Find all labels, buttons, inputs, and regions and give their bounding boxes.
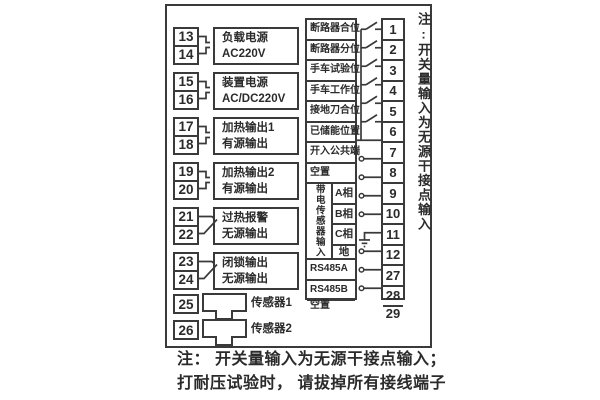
left-group-label: 加热输出1有源输出: [213, 117, 299, 155]
terminal-number: 18: [175, 137, 197, 153]
terminal-number: 2: [383, 41, 403, 62]
terminal-number: 15: [175, 74, 197, 92]
terminal-number: 27: [383, 266, 403, 287]
terminal-number: 20: [175, 182, 197, 198]
terminal-number: 4: [383, 82, 403, 103]
terminal-number: 21: [175, 209, 197, 227]
group-label-line: 闭锁输出: [222, 257, 297, 270]
group-label-line: 负载电源: [222, 32, 297, 45]
right-number-column: 123456789101112272829: [381, 18, 405, 300]
terminal-pair-17-18: 1718: [173, 117, 199, 155]
bottom-note-line-1: 注： 开关量输入为无源干接点输入；: [177, 352, 446, 368]
input-label-row: 断路器分位: [307, 41, 355, 62]
group-label-line: 加热输出1: [222, 122, 297, 135]
terminal-pair-13-14: 1314: [173, 27, 199, 65]
comm-label-row: RS485A: [307, 260, 355, 281]
terminal-number: 8: [383, 164, 403, 185]
left-group-label: 闭锁输出无源输出: [213, 252, 299, 290]
group-label-line: 过热报警: [222, 212, 297, 225]
input-label-row: 手车工作位: [307, 82, 355, 103]
terminal-number: 7: [383, 143, 403, 164]
terminal-number: 24: [175, 272, 197, 288]
input-label-row: 断路器合位: [307, 20, 355, 41]
terminal-number: 12: [383, 246, 403, 267]
left-group-label: 加热输出2有源输出: [213, 162, 299, 200]
terminal-number: 17: [175, 119, 197, 137]
terminal-box-26: 26: [173, 320, 199, 340]
group-label-line: AC/DC220V: [222, 93, 297, 106]
terminal-pair-23-24: 2324: [173, 252, 199, 290]
group-label-line: 装置电源: [222, 77, 297, 90]
bottom-note-line-2: 打耐压试验时， 请拔掉所有接线端子: [177, 376, 446, 392]
phase-label-row: C相: [333, 225, 355, 246]
terminal-number: 14: [175, 47, 197, 63]
side-note-vertical: 注:开关量输入为无源干接点输入: [406, 12, 430, 338]
terminal-pair-21-22: 2122: [173, 207, 199, 245]
terminal-number: 26: [175, 322, 197, 338]
input-label-row: 开入公共端: [307, 143, 355, 164]
terminal-wiring-diagram: 注:开关量输入为无源干接点输入 注： 开关量输入为无源干接点输入； 打耐压试验时…: [0, 0, 600, 400]
input-label-row: 空置: [307, 164, 355, 185]
sensor-label: 传感器1: [251, 298, 292, 310]
left-group-label: 负载电源AC220V: [213, 27, 299, 65]
phase-label-row: B相: [333, 205, 355, 226]
group-label-line: 有源输出: [222, 138, 297, 151]
group-label-line: 无源输出: [222, 228, 297, 241]
terminal-number: 10: [383, 205, 403, 226]
left-group-label: 装置电源AC/DC220V: [213, 72, 299, 110]
terminal-number: 29: [383, 307, 403, 320]
sensor-label: 传感器2: [251, 324, 292, 336]
phase-label-row: 地: [333, 246, 355, 259]
terminal-number: 28: [383, 287, 403, 308]
comm-label-row: RS485B: [307, 281, 355, 302]
group-label-line: AC220V: [222, 48, 297, 61]
terminal-number: 5: [383, 102, 403, 123]
live-sensor-group-label: 带电传感器输入: [307, 184, 333, 258]
terminal-number: 3: [383, 61, 403, 82]
live-sensor-phases: A相B相C相地: [333, 184, 355, 258]
terminal-number: 22: [175, 227, 197, 243]
terminal-number: 19: [175, 164, 197, 182]
live-sensor-input-group: 带电传感器输入A相B相C相地: [307, 184, 355, 260]
terminal-number: 23: [175, 254, 197, 272]
group-label-line: 加热输出2: [222, 167, 297, 180]
terminal-number: 11: [383, 225, 403, 246]
terminal-number: 6: [383, 123, 403, 144]
right-label-column: 断路器合位断路器分位手车试验位手车工作位接地刀合位已储能位置开入公共端空置带电传…: [305, 18, 357, 300]
terminal-number: 1: [383, 20, 403, 41]
left-group-label: 过热报警无源输出: [213, 207, 299, 245]
terminal-pair-15-16: 1516: [173, 72, 199, 110]
terminal-pair-19-20: 1920: [173, 162, 199, 200]
group-label-line: 有源输出: [222, 183, 297, 196]
terminal-box-25: 25: [173, 294, 199, 314]
input-label-row: 已储能位置: [307, 123, 355, 144]
terminal-number: 16: [175, 92, 197, 108]
terminal-number: 25: [175, 296, 197, 312]
input-label-row: 接地刀合位: [307, 102, 355, 123]
terminal-number: 13: [175, 29, 197, 47]
input-label-row: 手车试验位: [307, 61, 355, 82]
group-label-line: 无源输出: [222, 273, 297, 286]
comm-label-row: 空置: [307, 301, 355, 311]
phase-label-row: A相: [333, 184, 355, 205]
terminal-number: 9: [383, 184, 403, 205]
